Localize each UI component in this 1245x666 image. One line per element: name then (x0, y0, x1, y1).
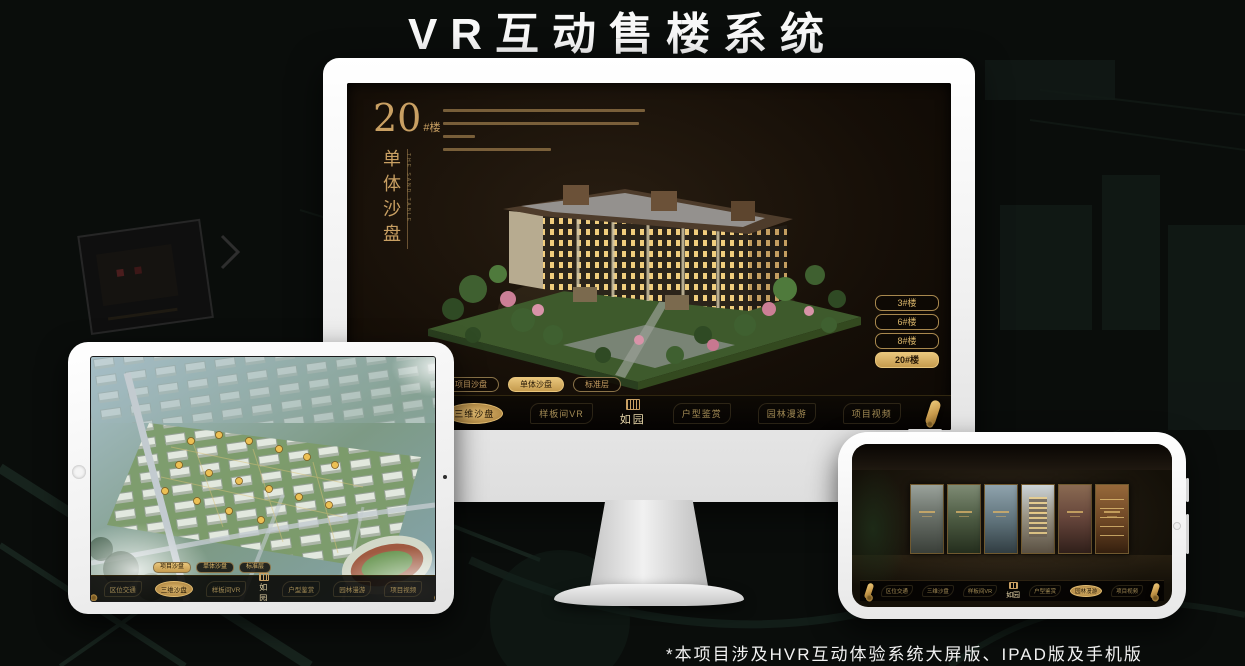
subtab-standard-floor[interactable]: 标准层 (573, 377, 621, 392)
floor-button-3[interactable]: 3#楼 (875, 295, 939, 311)
interior-ceiling (852, 444, 1172, 470)
tablet-sandbox-subtabs: 项目沙盘 单体沙盘 标准层 (153, 562, 271, 573)
gallery-panel-6[interactable] (1095, 484, 1129, 554)
tablet-nav-item-3d-sandbox[interactable]: 三维沙盘 (155, 581, 193, 597)
gallery-panel-2[interactable] (947, 484, 981, 554)
section-title-english: THE SAND TABLE (405, 153, 411, 223)
brand-logo-text: 如园 (620, 411, 646, 427)
section-title-vertical: 单体沙盘 (377, 149, 408, 249)
floor-button-20[interactable]: 20#楼 (875, 352, 939, 368)
sandbox-subtabs: 项目沙盘 单体沙盘 标准层 (443, 377, 621, 392)
phone-nav-item-project-video[interactable]: 项目视频 (1111, 585, 1143, 597)
nav-item-floorplans[interactable]: 户型鉴赏 (673, 403, 731, 424)
phone-scroll-handle-left-icon[interactable] (864, 582, 875, 599)
scroll-panel-gallery (910, 484, 1129, 554)
floor-button-8[interactable]: 8#楼 (875, 333, 939, 349)
tablet-nav-item-showroom-vr[interactable]: 样板间VR (206, 581, 247, 597)
tablet-brand-logo: 如园 (259, 573, 269, 602)
block-number: 20 (373, 96, 421, 140)
phone-main-nav: 区位交通 三维沙盘 样板间VR 如园 户型鉴赏 园林漫游 项目视频 (860, 580, 1164, 601)
tablet-subtab-standard-floor[interactable]: 标准层 (239, 562, 271, 573)
monitor-stand-base (554, 584, 744, 606)
brand-logo: 如园 (620, 399, 646, 427)
nav-item-project-video[interactable]: 项目视频 (843, 403, 901, 424)
phone-nav-item-location[interactable]: 区位交通 (881, 585, 913, 597)
page-title: VR互动售楼系统 (0, 0, 1245, 62)
phone-brand-logo: 如园 (1006, 582, 1020, 600)
tablet-seal-icon (259, 573, 269, 581)
floor-button-group: 3#楼 6#楼 8#楼 20#楼 (875, 295, 939, 368)
tablet-camera (443, 475, 447, 479)
phone-nav-item-garden-roam[interactable]: 园林漫游 (1070, 585, 1102, 597)
tablet-nav-item-location[interactable]: 区位交通 (104, 581, 142, 597)
stone-plaque (78, 220, 212, 334)
phone-nav-item-3d-sandbox[interactable]: 三维沙盘 (922, 585, 954, 597)
tablet-home-button[interactable] (72, 465, 86, 479)
phone-device: 区位交通 三维沙盘 样板间VR 如园 户型鉴赏 园林漫游 项目视频 (838, 432, 1186, 619)
tablet-nav-item-project-video[interactable]: 项目视频 (384, 581, 422, 597)
tablet-nav-item-floorplans[interactable]: 户型鉴赏 (282, 581, 320, 597)
phone-scroll-handle-right-icon[interactable] (1150, 582, 1161, 599)
phone-brand-logo-text: 如园 (1006, 590, 1020, 600)
tablet-nav-item-garden-roam[interactable]: 园林漫游 (333, 581, 371, 597)
gallery-panel-1[interactable] (910, 484, 944, 554)
phone-volume-button[interactable] (1186, 514, 1189, 554)
tablet-main-nav: 区位交通 三维沙盘 样板间VR 如园 户型鉴赏 园林漫游 项目视频 (91, 575, 435, 601)
tablet-screen: 项目沙盘 单体沙盘 标准层 区位交通 三维沙盘 样板间VR 如园 户型鉴赏 园林… (90, 356, 436, 602)
tablet-device: 项目沙盘 单体沙盘 标准层 区位交通 三维沙盘 样板间VR 如园 户型鉴赏 园林… (68, 342, 454, 614)
building-model-render (413, 139, 883, 394)
nav-item-garden-roam[interactable]: 园林漫游 (758, 403, 816, 424)
phone-front-camera (1173, 522, 1181, 530)
tablet-scroll-handle-right-icon[interactable] (432, 579, 436, 597)
block-heading: 20#楼 (373, 99, 440, 137)
scroll-handle-icon[interactable] (924, 399, 942, 427)
tablet-subtab-project-sandbox[interactable]: 项目沙盘 (153, 562, 191, 573)
phone-nav-item-floorplans[interactable]: 户型鉴赏 (1029, 585, 1061, 597)
seal-icon (626, 399, 640, 410)
gallery-panel-3[interactable] (984, 484, 1018, 554)
monitor-stand-neck (590, 500, 708, 586)
phone-screen: 区位交通 三维沙盘 样板间VR 如园 户型鉴赏 园林漫游 项目视频 (852, 444, 1172, 607)
tablet-brand-logo-text: 如园 (259, 582, 269, 602)
floor-button-6[interactable]: 6#楼 (875, 314, 939, 330)
gallery-panel-5[interactable] (1058, 484, 1092, 554)
footnote: *本项目涉及HVR互动体验系统大屏版、IPAD版及手机版 (666, 640, 1143, 665)
subtab-single-sandbox[interactable]: 单体沙盘 (508, 377, 564, 392)
nav-item-showroom-vr[interactable]: 样板间VR (530, 403, 593, 424)
phone-power-button[interactable] (1186, 478, 1189, 502)
tablet-subtab-single-sandbox[interactable]: 单体沙盘 (196, 562, 234, 573)
tablet-scroll-handle-left-icon[interactable] (90, 579, 94, 597)
phone-nav-item-showroom-vr[interactable]: 样板间VR (963, 585, 997, 597)
phone-top-button[interactable] (908, 429, 942, 432)
phone-seal-icon (1009, 582, 1018, 589)
poster-canvas: VR互动售楼系统 20#楼 单体沙盘 THE SAND TABLE (0, 0, 1245, 666)
block-unit: #楼 (423, 122, 440, 134)
gallery-panel-4[interactable] (1021, 484, 1055, 554)
